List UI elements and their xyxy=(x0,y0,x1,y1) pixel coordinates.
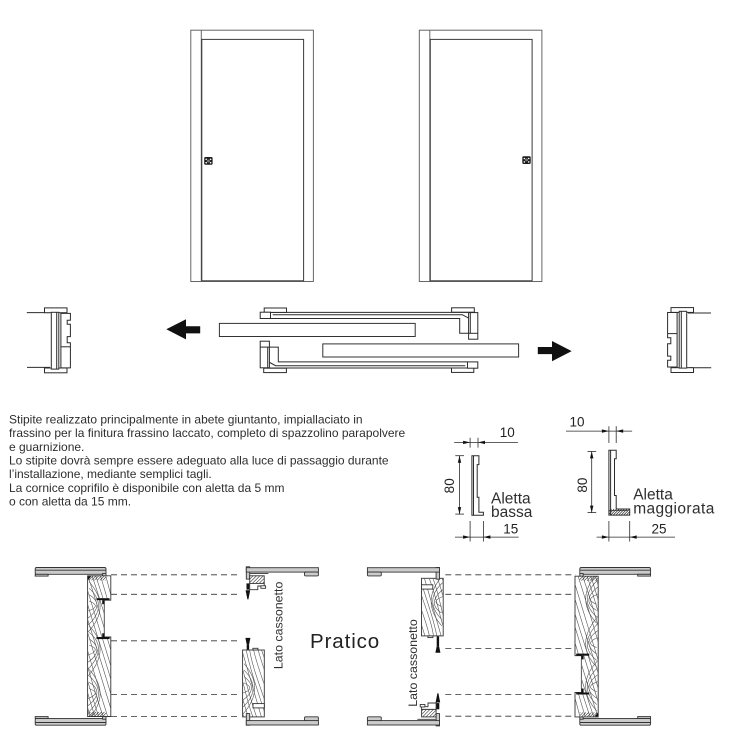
svg-text:Lato cassonetto: Lato cassonetto xyxy=(406,619,420,707)
svg-text:frassino per la finitura frass: frassino per la finitura frassino laccat… xyxy=(9,426,406,440)
svg-text:10: 10 xyxy=(569,415,584,430)
svg-text:maggiorata: maggiorata xyxy=(633,500,715,517)
svg-text:La cornice coprifilo è disponi: La cornice coprifilo è disponibile con a… xyxy=(9,481,284,495)
svg-text:e guarnizione.: e guarnizione. xyxy=(9,440,84,454)
svg-text:15: 15 xyxy=(503,521,518,536)
svg-text:Stipite realizzato principalm: Stipite realizzato principalmente in abe… xyxy=(9,412,363,426)
svg-text:Pratico: Pratico xyxy=(310,630,380,653)
svg-text:80: 80 xyxy=(575,478,590,493)
svg-text:25: 25 xyxy=(651,521,666,536)
svg-text:Lo stipite dovrà sempre essere: Lo stipite dovrà sempre essere adeguato … xyxy=(9,454,389,468)
svg-text:10: 10 xyxy=(500,425,515,440)
svg-text:Lato cassonetto: Lato cassonetto xyxy=(272,582,286,670)
svg-text:80: 80 xyxy=(442,478,457,493)
svg-text:l’installazione, mediante semp: l’installazione, mediante semplici tagli… xyxy=(9,467,212,481)
svg-text:o con aletta da 15 mm.: o con aletta da 15 mm. xyxy=(9,495,131,509)
svg-text:bassa: bassa xyxy=(491,504,533,521)
